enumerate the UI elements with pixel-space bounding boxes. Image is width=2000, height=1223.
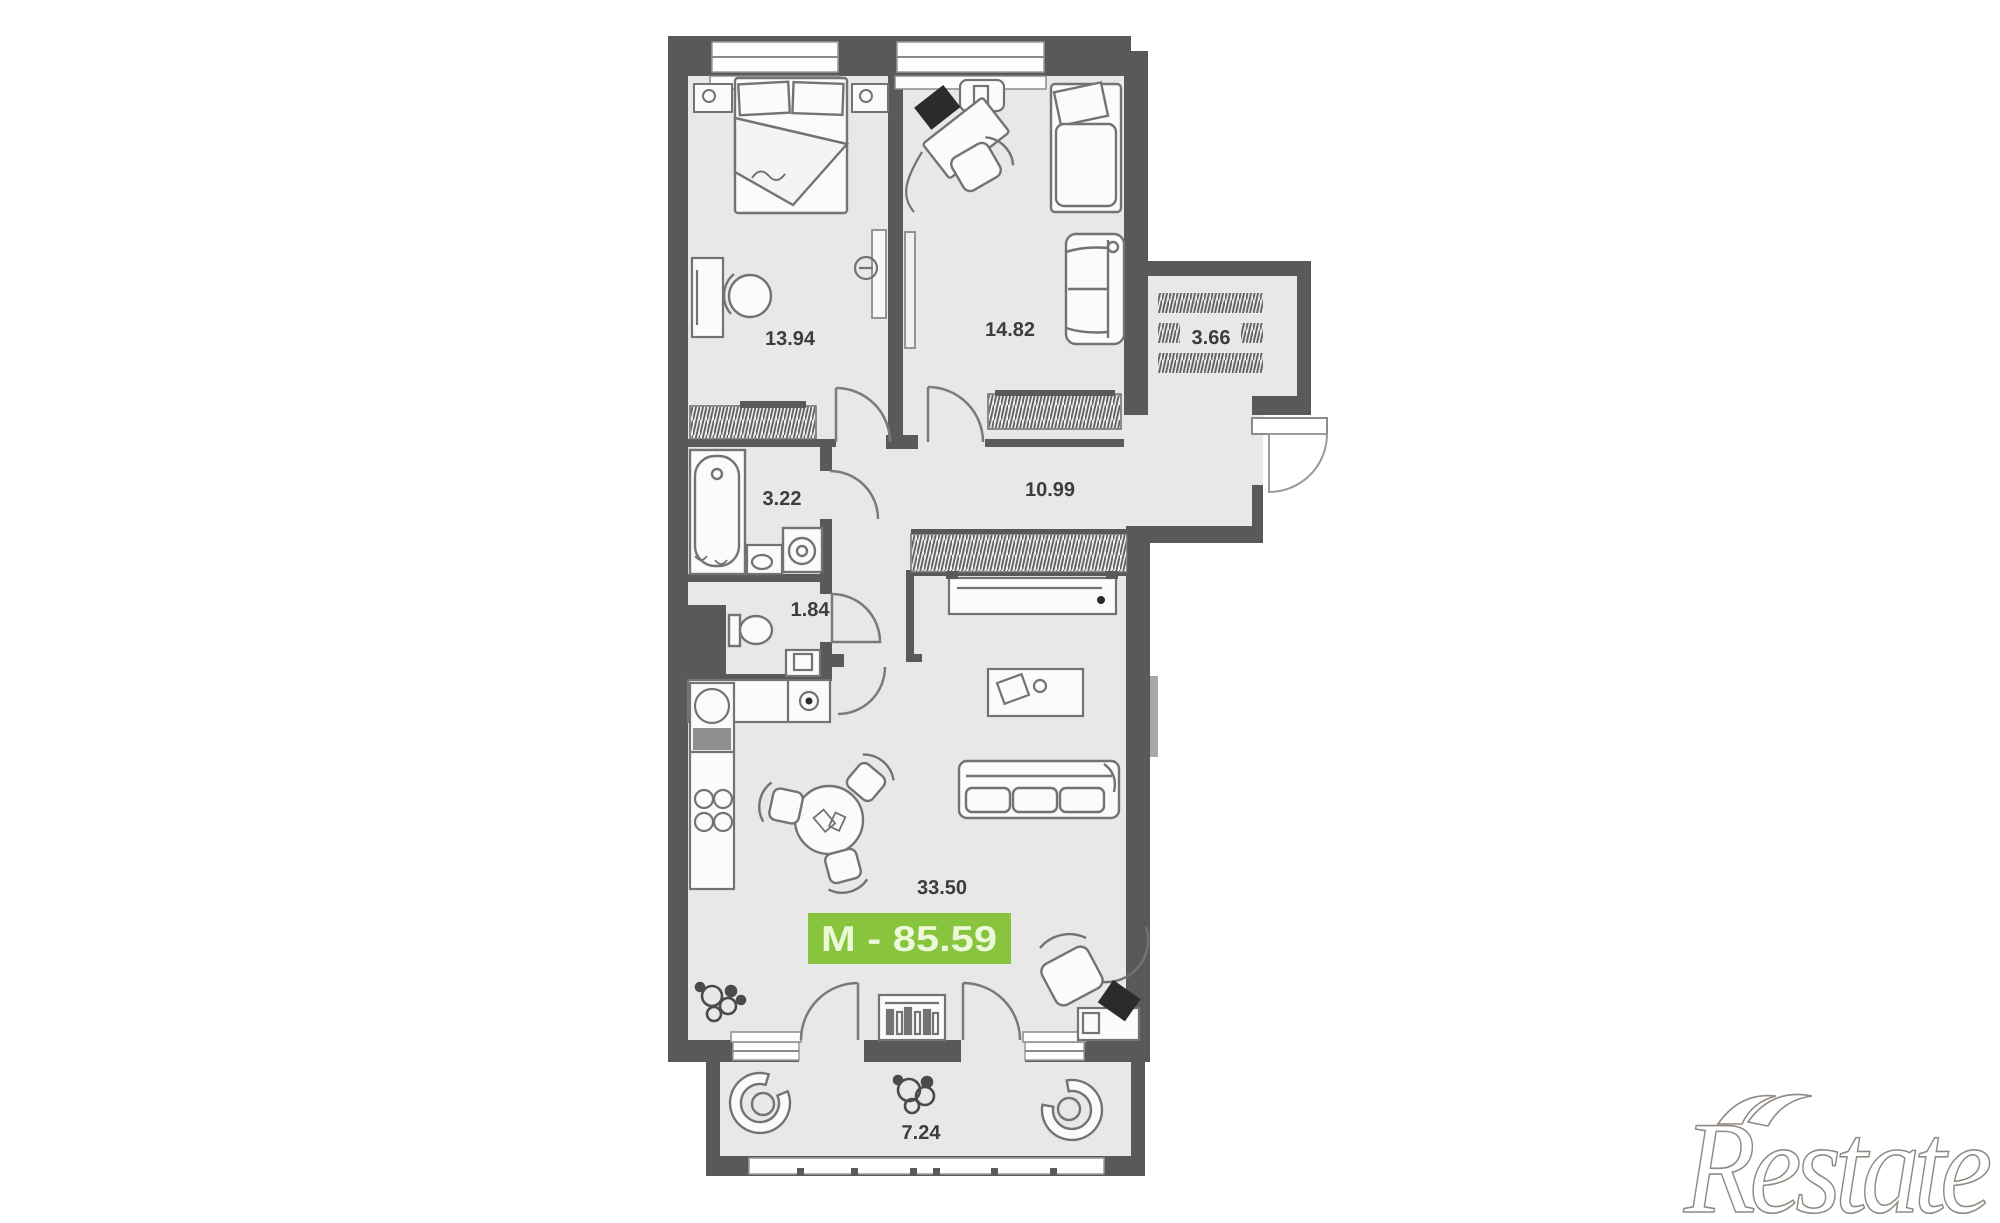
svg-text:3.66: 3.66 [1192, 327, 1231, 349]
svg-text:М - 85.59: М - 85.59 [821, 918, 997, 959]
svg-text:7.24: 7.24 [902, 1122, 942, 1144]
svg-text:33.50: 33.50 [917, 877, 967, 899]
svg-text:14.82: 14.82 [985, 319, 1035, 341]
svg-text:13.94: 13.94 [765, 328, 816, 350]
svg-text:10.99: 10.99 [1025, 479, 1075, 501]
svg-text:3.22: 3.22 [763, 488, 802, 510]
svg-text:1.84: 1.84 [791, 599, 831, 621]
